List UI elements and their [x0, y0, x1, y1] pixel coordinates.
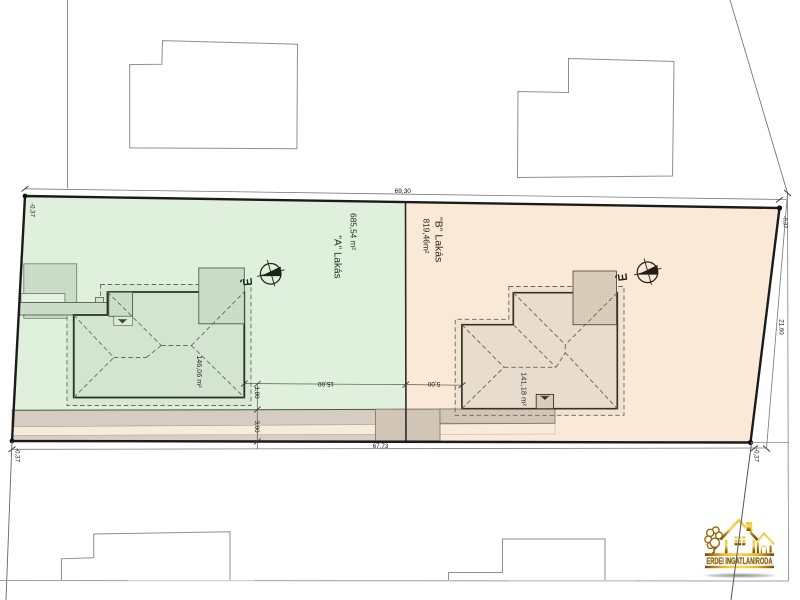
- svg-text:141,18 m²: 141,18 m²: [520, 372, 529, 406]
- svg-text:819,46m²: 819,46m²: [422, 218, 432, 253]
- svg-text:146,06 m²: 146,06 m²: [195, 355, 204, 388]
- svg-text:-0,37: -0,37: [782, 216, 788, 229]
- svg-text:5,00: 5,00: [427, 380, 440, 387]
- svg-text:"B" Lakás: "B" Lakás: [433, 217, 445, 262]
- svg-text:21,60: 21,60: [778, 319, 785, 335]
- svg-text:-0,37: -0,37: [14, 448, 21, 463]
- svg-text:1,80: 1,80: [253, 386, 260, 399]
- svg-text:-0,37: -0,37: [29, 203, 36, 218]
- svg-text:"A" Lakás: "A" Lakás: [331, 235, 342, 278]
- svg-text:ERDEI INGATLANIRODA: ERDEI INGATLANIRODA: [707, 556, 773, 566]
- svg-text:3,00: 3,00: [253, 420, 260, 433]
- svg-text:15,00: 15,00: [318, 380, 334, 387]
- svg-text:69,30: 69,30: [395, 188, 412, 195]
- svg-text:685,54 m²: 685,54 m²: [348, 213, 357, 250]
- svg-text:-0,37: -0,37: [753, 448, 760, 463]
- svg-text:67,73: 67,73: [373, 443, 389, 450]
